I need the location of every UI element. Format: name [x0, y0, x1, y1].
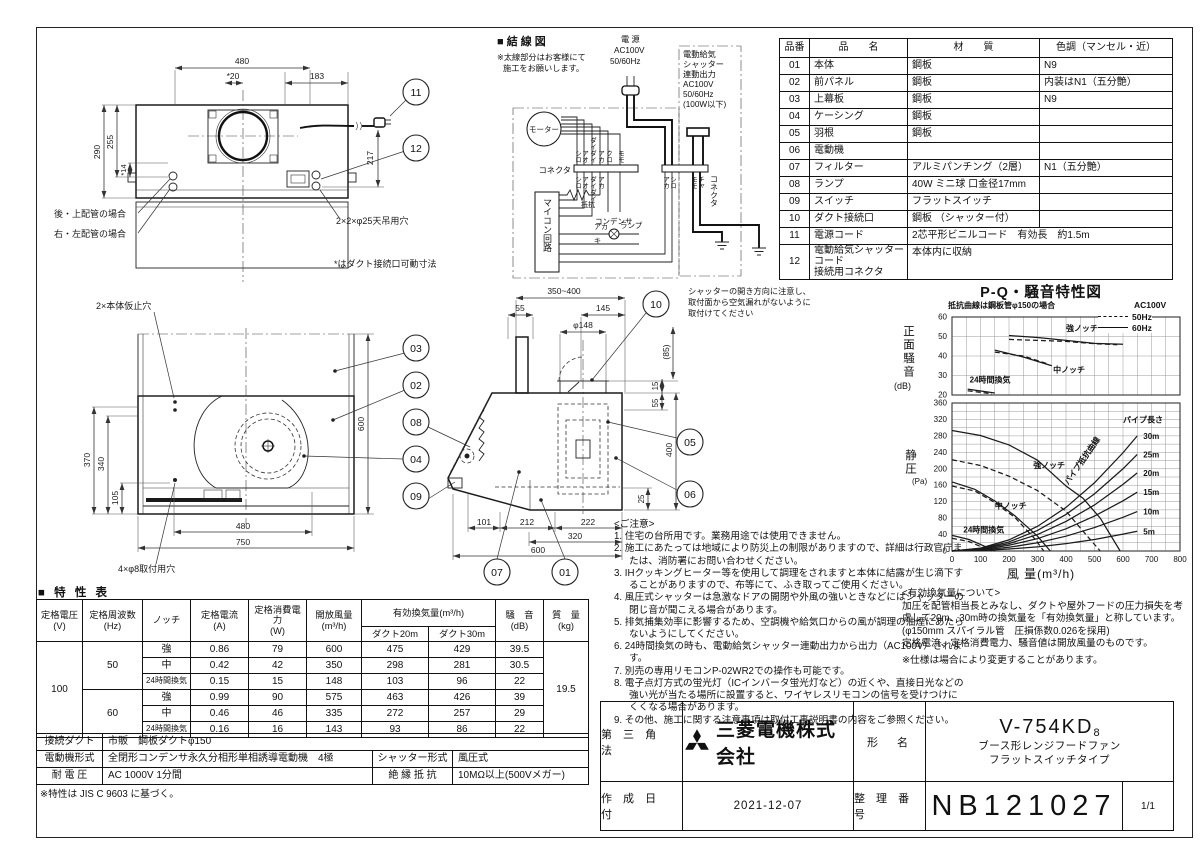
cell-noise: 39	[496, 690, 544, 706]
cell-no: 04	[780, 109, 810, 126]
pipe-length-label: 25m	[1143, 450, 1159, 459]
legend-60hz-label: 60Hz	[1132, 323, 1152, 333]
cell-duct30: 429	[429, 642, 496, 658]
cell-material: アルミパンチング（2層）	[908, 160, 1040, 177]
company-name: 三菱電機株式会社	[716, 715, 853, 769]
wire-label: シロ	[669, 176, 677, 189]
table-row: 耐 電 圧 AC 1000V 1分間 絶 縁 抵 抗 10MΩ以上(500Vメガ…	[37, 768, 589, 785]
front-view-drawing: 2×本体仮止穴 370 340 105 600	[36, 292, 476, 584]
parts-header-row: 品番 品 名 材 質 色調（マンセル・近）	[780, 39, 1173, 58]
col-header-noise: 騒 音 (dB)	[496, 600, 544, 642]
tick-label: 60	[938, 313, 947, 322]
tick-label: 40	[938, 352, 947, 361]
tick-label: 360	[934, 399, 948, 408]
title-block: 第 三 角 法 三菱電機株式会社 形 名 V-754KD8 ブース形レンジフード…	[600, 701, 1174, 831]
ground-icon	[752, 248, 766, 255]
dim-14: *14	[119, 164, 128, 175]
effective-ventilation-note: <有効換気量について> 加圧を配管相当長とみなし、ダクトや屋外フードの圧力損失を…	[902, 588, 1192, 668]
cell-shutter-label: シャッター形式	[373, 751, 453, 768]
col-header-current: 定格電流 (A)	[191, 600, 249, 642]
connector-left-label: コネクタ	[539, 166, 571, 175]
cell-notch: 24時間換気	[143, 674, 191, 690]
col-header-notch: ノッチ	[143, 600, 191, 642]
cell-no: 12	[780, 245, 810, 280]
tick-label: 120	[934, 497, 948, 506]
col-header-voltage: 定格電圧 (V)	[37, 600, 83, 642]
dim-105: 105	[110, 491, 120, 505]
cell-current: 0.99	[191, 690, 249, 706]
spec-change-footnote: ※仕様は場合により変更することがあります。	[902, 655, 1192, 668]
shutter-out-4: AC100V	[683, 80, 714, 89]
cell-noise: 29	[496, 706, 544, 722]
tick-label: 300	[1031, 555, 1045, 564]
table-row: 接続ダクト 市販 鋼板ダクトφ150	[37, 734, 589, 751]
dim-350-400: 350~400	[547, 286, 581, 296]
table-row: 60 強 0.99 90 575 463 426 39	[37, 690, 589, 706]
table-row: 08ランプ40W ミニ球 口金径17mm	[780, 177, 1173, 194]
tick-label: 40	[938, 530, 947, 539]
pipe-length-label: 5m	[1143, 527, 1155, 536]
cell-no: 09	[780, 194, 810, 211]
curve-label: 中ノッチ	[995, 501, 1027, 511]
dim-101: 101	[477, 517, 491, 527]
cell-color	[1040, 109, 1173, 126]
tick-label: 280	[934, 431, 948, 440]
parts-table: 品番 品 名 材 質 色調（マンセル・近） 01本体鋼板N9 02前パネル鋼板内…	[779, 38, 1173, 280]
model-suffix: 8	[1093, 727, 1099, 739]
lamp-wire-yellow: キ	[594, 238, 601, 245]
wire-label: アオ	[581, 150, 589, 164]
cell-motor-value: 全閉形コンデンサ永久分相形単相誘導電動機 4極	[103, 751, 373, 768]
dim-400: 400	[664, 443, 674, 457]
cell-no: 07	[780, 160, 810, 177]
tick-label: 600	[1116, 555, 1130, 564]
col-header-duct20: ダクト20m	[362, 627, 429, 642]
plug-icon	[622, 86, 639, 95]
tick-label: 0	[943, 547, 948, 556]
cell-current: 0.15	[191, 674, 249, 690]
callout-04: 04	[410, 454, 422, 466]
cell-name: 本体	[810, 58, 908, 75]
cell-duct20: 272	[362, 706, 429, 722]
cell-freq-50: 50	[83, 642, 143, 690]
curve-label: 24時間換気	[970, 374, 1011, 384]
cell-name: ダクト接続口	[810, 211, 908, 228]
tick-label: 800	[1173, 555, 1187, 564]
cell-noise: 39.5	[496, 642, 544, 658]
cell-name: 羽根	[810, 126, 908, 143]
callout-02: 02	[410, 380, 422, 392]
cell-motor-label: 電動機形式	[37, 751, 103, 768]
model-number: V-754KD	[999, 716, 1093, 738]
dim-145: 145	[596, 303, 610, 313]
dim-85: (85)	[661, 344, 671, 359]
pipe-curve-20m	[952, 473, 1137, 551]
shutter-note-3: 取付けてください	[688, 308, 753, 318]
tick-label: 100	[974, 555, 988, 564]
callout-05: 05	[684, 437, 696, 449]
callout-12: 12	[410, 143, 422, 155]
tick-label: 400	[1059, 555, 1073, 564]
tick-label: 160	[934, 481, 948, 490]
effective-note-body: 加圧を配管相当長とみなし、ダクトや屋外フードの圧力損失を考慮して20m、30m時…	[902, 601, 1192, 639]
dim-20: *20	[227, 71, 240, 81]
connector-right-label: コネクタ	[710, 175, 719, 207]
pressure-y-axis-unit: (Pa)	[912, 477, 927, 486]
cell-duct20: 103	[362, 674, 429, 690]
dim-55-top: 55	[515, 303, 525, 313]
cell-color: N9	[1040, 58, 1173, 75]
curve-label: 強ノッチ	[1033, 460, 1065, 470]
callout-06: 06	[684, 489, 696, 501]
tick-label: 200	[1002, 555, 1016, 564]
tick-label: 30	[938, 371, 947, 380]
power-label-1: 電 源	[621, 35, 640, 44]
cell-no: 11	[780, 228, 810, 245]
creation-date-label: 作 成 日 付	[601, 782, 683, 830]
cell-power: 79	[249, 642, 307, 658]
cell-name: 上幕板	[810, 92, 908, 109]
cell-color	[1040, 126, 1173, 143]
cell-duct20: 298	[362, 658, 429, 674]
callout-03: 03	[410, 343, 422, 355]
cell-open-flow: 575	[307, 690, 362, 706]
cell-color: N9	[1040, 92, 1173, 109]
label-mount-holes: 4×φ8取付用穴	[118, 563, 175, 574]
table-row: 06電動機	[780, 143, 1173, 160]
plug-icon	[374, 118, 385, 127]
ground-icon	[715, 242, 729, 249]
cell-notch: 中	[143, 658, 191, 674]
table-row: 10ダクト接続口鋼板 （シャッター付）	[780, 211, 1173, 228]
cell-withstand-label: 耐 電 圧	[37, 768, 103, 785]
dim-340: 340	[96, 457, 106, 471]
motor-label: モーター	[529, 125, 559, 134]
creation-date: 2021-12-07	[683, 782, 854, 830]
reference-number: NB121027	[926, 782, 1123, 830]
cell-material: 鋼板	[908, 109, 1040, 126]
cell-material: 40W ミニ球 口金径17mm	[908, 177, 1040, 194]
series-中ノッチ 60Hz	[952, 482, 1050, 551]
dim-55-right: 55	[651, 398, 660, 407]
col-header-open-flow: 開放風量 (m³/h)	[307, 600, 362, 642]
callout-01: 01	[559, 567, 571, 579]
shutter-note-1: シャッターの開き方向に注意し、	[688, 286, 811, 296]
legend-50hz-label: 50Hz	[1132, 312, 1152, 322]
cell-power: 42	[249, 658, 307, 674]
cell-notch: 中	[143, 706, 191, 722]
cell-material: 鋼板 （シャッター付）	[908, 211, 1040, 228]
table-row: 02前パネル鋼板内装はN1（五分艶）	[780, 75, 1173, 92]
mitsubishi-logo-icon	[683, 728, 711, 755]
cell-name: ケーシング	[810, 109, 908, 126]
tick-label: 80	[938, 514, 947, 523]
cell-material: 鋼板	[908, 126, 1040, 143]
pipe-length-label: 10m	[1143, 508, 1159, 517]
cell-no: 01	[780, 58, 810, 75]
tick-label: 0	[950, 555, 955, 564]
dim-222: 222	[581, 517, 595, 527]
cell-name: フィルター	[810, 160, 908, 177]
cell-open-flow: 148	[307, 674, 362, 690]
cell-mass: 19.5	[544, 642, 589, 738]
dim-183: 183	[310, 71, 324, 81]
dim-320: 320	[568, 531, 582, 541]
table-row: 電動機形式 全閉形コンデンサ永久分相形単相誘導電動機 4極 シャッター形式 風圧…	[37, 751, 589, 768]
wire-label: ダイダイ	[589, 136, 597, 164]
dim-phi148: φ148	[573, 320, 593, 330]
callout-08: 08	[410, 417, 422, 429]
cell-material: 鋼板	[908, 75, 1040, 92]
reference-number-label: 整 理 番 号	[854, 782, 926, 830]
cell-power: 46	[249, 706, 307, 722]
note-movable-duct: *はダクト接続口可動寸法	[334, 258, 437, 269]
top-view-drawing: 480 *20 183 217 290	[40, 30, 492, 288]
lamp-wire-red: アカ	[594, 223, 608, 231]
wire-label: クロ	[605, 150, 613, 164]
col-header-duct30: ダクト30m	[429, 627, 496, 642]
cell-color: 内装はN1（五分艶）	[1040, 75, 1173, 92]
cell-open-flow: 600	[307, 642, 362, 658]
cell-material: フラットスイッチ	[908, 194, 1040, 211]
table-row: 07フィルターアルミパンチング（2層）N1（五分艶）	[780, 160, 1173, 177]
page-number: 1/1	[1123, 782, 1173, 830]
tick-label: 320	[934, 415, 948, 424]
cell-noise: 30.5	[496, 658, 544, 674]
cell-color	[1040, 194, 1173, 211]
shutter-out-5: 50/60Hz	[683, 90, 714, 99]
pipe-length-label: 15m	[1143, 488, 1159, 497]
chart-title: P-Q・騒音特性図	[888, 281, 1194, 302]
cell-no: 06	[780, 143, 810, 160]
wiring-title: ■ 結 線 図	[497, 34, 546, 48]
cell-withstand-value: AC 1000V 1分間	[103, 768, 373, 785]
table-row: 05羽根鋼板	[780, 126, 1173, 143]
spec-header-row-1: 定格電圧 (V) 定格周波数 (Hz) ノッチ 定格電流 (A) 定格消費電力 …	[37, 600, 589, 627]
cell-duct30: 257	[429, 706, 496, 722]
callout-10: 10	[650, 299, 662, 311]
cell-material: 本体内に収納	[908, 245, 1173, 280]
pressure-y-axis-label: 静圧	[902, 449, 918, 476]
model-description-2: フラットスイッチタイプ	[989, 753, 1110, 767]
cell-color	[1040, 211, 1173, 228]
effective-note-heading: <有効換気量について>	[902, 588, 1192, 601]
cell-color	[1040, 143, 1173, 160]
col-header-freq: 定格周波数 (Hz)	[83, 600, 143, 642]
cell-material: 2芯平形ビニルコード 有効長 約1.5m	[908, 228, 1173, 245]
wire-label: アカ	[597, 176, 605, 190]
cell-no: 10	[780, 211, 810, 228]
shutter-note-2: 取付面から空気漏れがないように	[688, 297, 811, 307]
cell-duct30: 426	[429, 690, 496, 706]
col-header-no: 品番	[780, 39, 810, 58]
cell-duct30: 96	[429, 674, 496, 690]
cell-name: 前パネル	[810, 75, 908, 92]
col-header-power: 定格消費電力 (W)	[249, 600, 307, 642]
wiring-note-1: ※太線部分はお客様にて	[497, 52, 586, 62]
cell-open-flow: 335	[307, 706, 362, 722]
tick-label: 500	[1088, 555, 1102, 564]
spec-bottom-table: 接続ダクト 市販 鋼板ダクトφ150 電動機形式 全閉形コンデンサ永久分相形単相…	[36, 733, 589, 785]
cell-duct20: 463	[362, 690, 429, 706]
dim-600: 600	[531, 545, 545, 555]
noise-y-axis-label: 正面騒音	[900, 325, 916, 379]
cell-no: 08	[780, 177, 810, 194]
tick-label: 200	[934, 464, 948, 473]
table-row: 09スイッチフラットスイッチ	[780, 194, 1173, 211]
lamp-label: ランプ	[620, 221, 643, 230]
cell-name: ランプ	[810, 177, 908, 194]
cell-insulation-value: 10MΩ以上(500Vメガー)	[453, 768, 589, 785]
tick-label: 700	[1145, 555, 1159, 564]
callout-09: 09	[410, 491, 422, 503]
shutter-out-3: 連動出力	[683, 69, 716, 79]
power-label-2: AC100V	[614, 46, 645, 55]
wire-label: ダイダイ	[589, 175, 597, 203]
label-ceiling-holes: 2×2×φ25天吊用穴	[336, 215, 408, 226]
spec-table: 定格電圧 (V) 定格周波数 (Hz) ノッチ 定格電流 (A) 定格消費電力 …	[36, 599, 589, 738]
cell-color	[1040, 177, 1173, 194]
tick-label: 50	[938, 332, 947, 341]
table-row: 01本体鋼板N9	[780, 58, 1173, 75]
pq-noise-chart: P-Q・騒音特性図 抵抗曲線は鋼板管φ150の場合 AC100V 50Hz 60…	[888, 281, 1194, 586]
legend-50hz-line	[1098, 316, 1128, 317]
cell-no: 02	[780, 75, 810, 92]
table-row: 04ケーシング鋼板	[780, 109, 1173, 126]
micon-circuit-label: マイコン回路	[542, 198, 552, 253]
dim-600: 600	[356, 417, 366, 431]
dim-480: 480	[235, 56, 249, 66]
dim-750: 750	[236, 537, 250, 547]
cell-power: 15	[249, 674, 307, 690]
dim-290: 290	[92, 145, 102, 159]
label-temp-holes: 2×本体仮止穴	[96, 300, 151, 311]
col-header-name: 品 名	[810, 39, 908, 58]
wiring-diagram: ■ 結 線 図 ※太線部分はお客様にて 施工をお願いします。 電 源 AC100…	[497, 32, 769, 285]
cell-color: N1（五分艶）	[1040, 160, 1173, 177]
shutter-out-2: シャッター	[683, 60, 724, 69]
cell-name: 電源コード	[810, 228, 908, 245]
curve-label: 中ノッチ	[1053, 365, 1085, 375]
cell-no: 05	[780, 126, 810, 143]
cell-duct-value: 市販 鋼板ダクトφ150	[103, 734, 589, 751]
label-right-left-piping: 右・左配管の場合	[54, 228, 126, 239]
cell-current: 0.46	[191, 706, 249, 722]
company-cell: 三菱電機株式会社	[683, 702, 854, 781]
cell-name: 電動給気シャッターコード 接続用コネクタ	[810, 245, 908, 280]
spec-sheet-page: 480 *20 183 217 290	[0, 0, 1200, 848]
cell-notch: 強	[143, 642, 191, 658]
legend-60hz-line	[1098, 327, 1128, 328]
power-label-3: 50/60Hz	[610, 57, 641, 66]
cell-power: 90	[249, 690, 307, 706]
cell-current: 0.86	[191, 642, 249, 658]
table-row: 11電源コード2芯平形ビニルコード 有効長 約1.5m	[780, 228, 1173, 245]
cell-shutter-value: 風圧式	[453, 751, 589, 768]
shutter-out-6: (100W以下)	[683, 100, 726, 109]
dim-255: 255	[105, 135, 115, 149]
col-header-color: 色調（マンセル・近）	[1040, 39, 1173, 58]
table-row: 03上幕板鋼板N9	[780, 92, 1173, 109]
wiring-note-2: 施工をお願いします。	[503, 63, 584, 73]
cell-duct20: 475	[362, 642, 429, 658]
curve-label: 24時間換気	[963, 525, 1004, 535]
series-中ノッチ 50Hz	[952, 486, 1044, 551]
callout-07: 07	[491, 567, 503, 579]
wire-label: アカ	[597, 150, 605, 164]
chart-legend: 50Hz 60Hz	[1098, 311, 1152, 333]
chart-voltage-label: AC100V	[1134, 300, 1166, 310]
cell-no: 03	[780, 92, 810, 109]
pipe-length-label: 20m	[1143, 469, 1159, 478]
cell-voltage: 100	[37, 642, 83, 738]
cell-material	[908, 143, 1040, 160]
jis-footnote: ※特性は JIS C 9603 に基づく。	[40, 786, 179, 800]
model-description-1: ブース形レンジフードファン	[978, 739, 1120, 753]
resistor-label: 抵抗	[581, 200, 595, 209]
projection-method-label: 第 三 角 法	[601, 702, 683, 781]
curve-label: パイプ長さ	[1123, 415, 1163, 425]
x-axis-label: 風 量(m³/h)	[888, 565, 1194, 582]
cell-duct30: 281	[429, 658, 496, 674]
cell-duct-label: 接続ダクト	[37, 734, 103, 751]
table-row: 100 50 強 0.86 79 600 475 429 39.5 19.5	[37, 642, 589, 658]
table-row: 12電動給気シャッターコード 接続用コネクタ本体内に収納	[780, 245, 1173, 280]
cell-freq-60: 60	[83, 690, 143, 738]
cell-material: 鋼板	[908, 58, 1040, 75]
dim-212: 212	[520, 517, 534, 527]
chart-note: 抵抗曲線は鋼板管φ150の場合	[948, 300, 1055, 311]
tick-label: 240	[934, 448, 948, 457]
effective-note-body2: 定格電流、定格消費電力、騒音値は開放風量のものです。	[902, 638, 1192, 651]
col-header-effective: 有効換気量(m³/h)	[362, 600, 496, 627]
dim-15: 15	[651, 381, 660, 390]
col-header-material: 材 質	[908, 39, 1040, 58]
label-rear-top-piping: 後・上配管の場合	[54, 208, 126, 219]
noise-y-axis-unit: (dB)	[894, 381, 911, 391]
cell-open-flow: 350	[307, 658, 362, 674]
cell-name: スイッチ	[810, 194, 908, 211]
cell-noise: 22	[496, 674, 544, 690]
model-cell: V-754KD8 ブース形レンジフードファン フラットスイッチタイプ	[926, 702, 1173, 781]
cell-name: 電動機	[810, 143, 908, 160]
cell-current: 0.42	[191, 658, 249, 674]
spec-table-title: ■ 特 性 表	[38, 584, 110, 600]
pipe-length-label: 30m	[1143, 432, 1159, 441]
curve-label: 強ノッチ	[1066, 323, 1098, 333]
wire-label: モモ	[617, 150, 625, 164]
dim-370: 370	[82, 453, 92, 467]
dim-25: 25	[637, 494, 646, 503]
cell-notch: 強	[143, 690, 191, 706]
power-cord	[300, 126, 354, 129]
cell-insulation-label: 絶 縁 抵 抗	[373, 768, 453, 785]
model-label: 形 名	[854, 702, 926, 781]
dim-480: 480	[236, 521, 250, 531]
cell-material: 鋼板	[908, 92, 1040, 109]
col-header-mass: 質 量 (kg)	[544, 600, 589, 642]
wire-label: アオ	[581, 176, 589, 190]
callout-11: 11	[411, 87, 422, 99]
shutter-out-1: 電動給気	[683, 49, 716, 59]
